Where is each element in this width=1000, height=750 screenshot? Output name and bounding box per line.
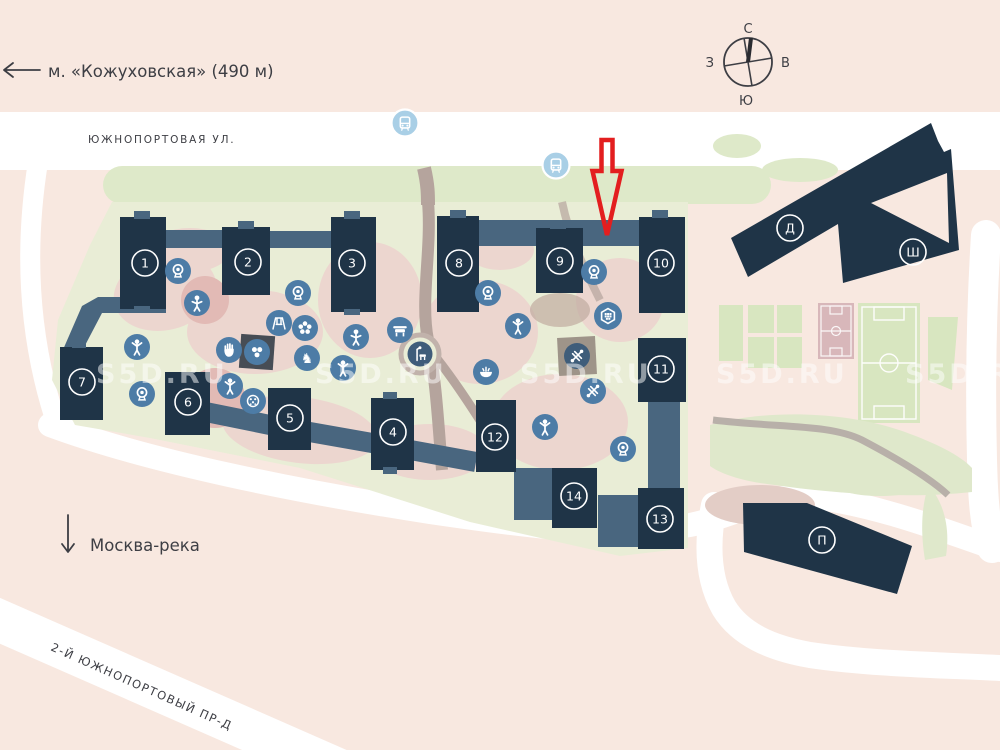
playground-icon [343,324,369,350]
swing-icon [266,310,292,336]
playground-jump-icon [124,334,150,360]
fountain-icon [473,359,499,385]
svg-text:8: 8 [455,256,463,271]
svg-text:S5D.RU: S5D.RU [96,359,228,390]
svg-text:З: З [706,56,714,71]
svg-text:П: П [817,533,826,548]
road-east [981,235,992,548]
site-plan-map: ♞ [0,0,1000,750]
svg-text:5: 5 [286,411,294,426]
river-label: Москва-река [90,536,200,555]
greenery-street-strip [103,166,771,204]
svg-text:12: 12 [487,430,503,445]
svg-text:S5D.RU: S5D.RU [905,359,1000,390]
svg-text:14: 14 [566,489,582,504]
sports-pavilion-icon [594,302,622,330]
art-object-icon [240,388,266,414]
svg-text:С: С [743,22,752,37]
bus-stop-icon [392,110,419,137]
svg-text:S5D.RU: S5D.RU [520,359,652,390]
playground-icon [184,290,210,316]
svg-text:7: 7 [78,375,86,390]
security-camera-icon [610,436,636,462]
svg-text:S5D.RU: S5D.RU [716,359,848,390]
security-camera-icon [285,280,311,306]
svg-text:6: 6 [184,395,192,410]
svg-text:4: 4 [389,425,397,440]
basketball-court [818,303,854,359]
svg-text:9: 9 [556,254,564,269]
play-balls-icon [244,339,270,365]
playground-jump-icon [505,313,531,339]
greenery-blob [762,158,838,182]
svg-text:10: 10 [653,256,669,271]
security-camera-icon [165,258,191,284]
security-camera-icon [581,259,607,285]
metro-label: м. «Кожуховская» (490 м) [48,62,274,81]
ground-patch [530,293,590,327]
street-top-label: ЮЖНОПОРТОВАЯ УЛ. [88,134,235,146]
svg-text:Ю: Ю [739,94,753,109]
svg-text:3: 3 [348,256,356,271]
svg-text:Д: Д [785,221,795,236]
bus-stop-icon [543,152,570,179]
svg-text:2: 2 [244,255,252,270]
svg-text:В: В [781,56,790,71]
playground-icon [532,414,558,440]
svg-text:11: 11 [653,362,669,377]
bench-icon [387,317,413,343]
greenery-blob [713,134,761,158]
svg-text:1: 1 [141,256,149,271]
security-camera-icon [475,280,501,306]
svg-text:Ш: Ш [906,245,919,260]
svg-text:S5D.RU: S5D.RU [315,359,447,390]
flower-icon [292,315,318,341]
svg-text:13: 13 [652,512,668,527]
